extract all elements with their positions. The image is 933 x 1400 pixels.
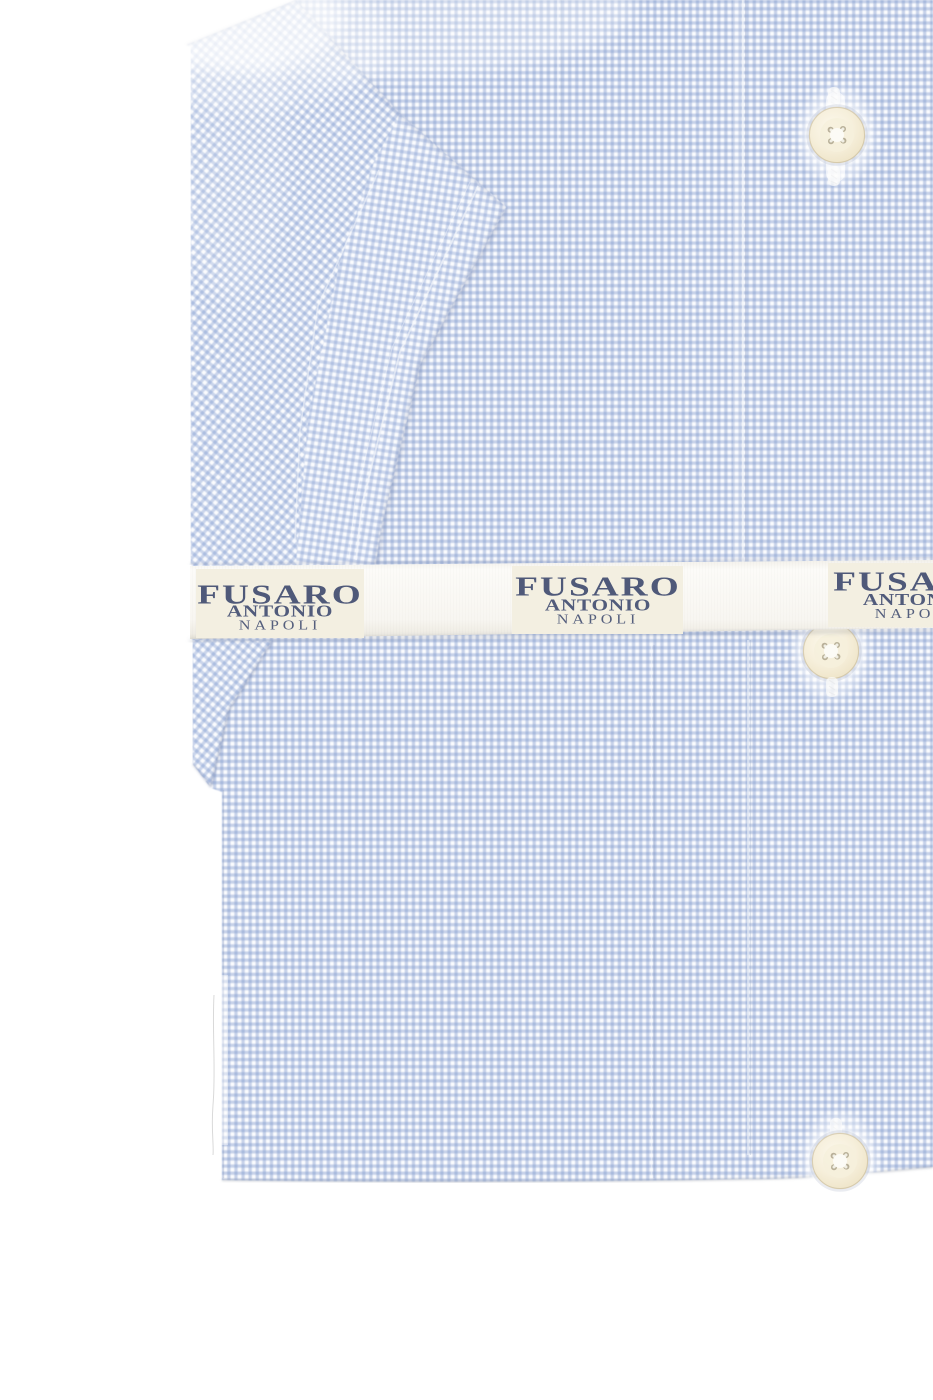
svg-text:NAPOLI: NAPOLI (239, 619, 321, 633)
svg-text:NAPOLI: NAPOLI (557, 613, 639, 627)
svg-text:NAPOLI: NAPOLI (875, 607, 933, 621)
